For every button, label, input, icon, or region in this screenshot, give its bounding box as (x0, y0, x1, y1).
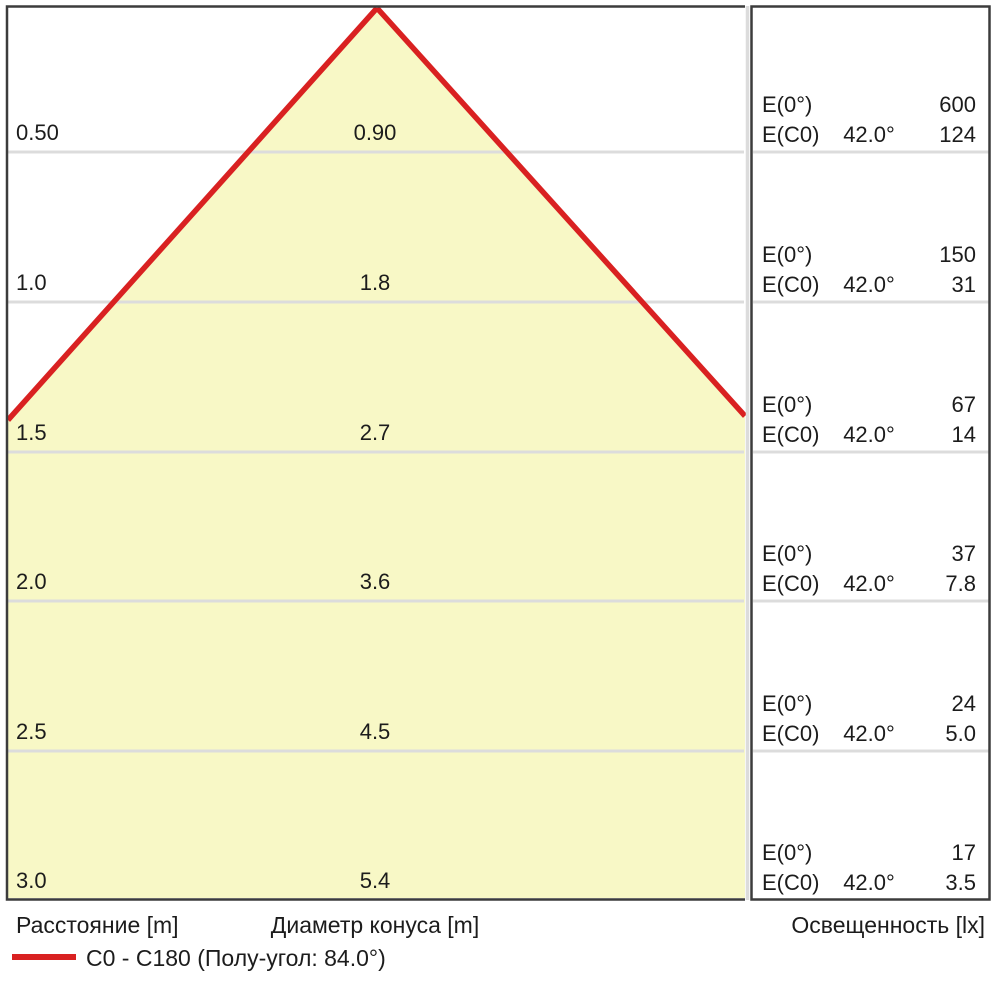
ec0-angle: 42.0° (836, 270, 902, 300)
ec0-label: E(C0) (762, 270, 836, 300)
illuminance-row: E(0°)150 E(C0)42.0°31 (762, 240, 976, 300)
distance-axis-label: Расстояние [m] (16, 910, 179, 940)
illuminance-row: E(0°)17 E(C0)42.0°3.5 (762, 838, 976, 898)
ec0-label: E(C0) (762, 120, 836, 150)
e0-value: 600 (902, 90, 976, 120)
ec0-angle: 42.0° (836, 120, 902, 150)
cone-diameter-label: 2.7 (250, 420, 500, 446)
e0-label: E(0°) (762, 240, 836, 270)
e0-label: E(0°) (762, 390, 836, 420)
e0-value: 67 (902, 390, 976, 420)
distance-label: 3.0 (16, 868, 47, 894)
ec0-angle: 42.0° (836, 868, 902, 898)
e0-value: 37 (902, 539, 976, 569)
ec0-value: 3.5 (902, 868, 976, 898)
ec0-angle: 42.0° (836, 719, 902, 749)
distance-label: 1.5 (16, 420, 47, 446)
e0-label: E(0°) (762, 689, 836, 719)
cone-diameter-label: 0.90 (250, 120, 500, 146)
cone-diameter-axis-label: Диаметр конуса [m] (250, 910, 500, 940)
illuminance-row: E(0°)37 E(C0)42.0°7.8 (762, 539, 976, 599)
distance-label: 0.50 (16, 120, 59, 146)
legend-label: C0 - C180 (Полу-угол: 84.0°) (86, 943, 386, 973)
ec0-label: E(C0) (762, 569, 836, 599)
e0-label: E(0°) (762, 539, 836, 569)
ec0-value: 124 (902, 120, 976, 150)
ec0-angle: 42.0° (836, 569, 902, 599)
ec0-value: 5.0 (902, 719, 976, 749)
cone-diagram: 0.50 1.0 1.5 2.0 2.5 3.0 0.90 1.8 2.7 3.… (0, 0, 1000, 1000)
ec0-label: E(C0) (762, 868, 836, 898)
ec0-value: 7.8 (902, 569, 976, 599)
e0-value: 150 (902, 240, 976, 270)
ec0-value: 14 (902, 420, 976, 450)
e0-label: E(0°) (762, 90, 836, 120)
cone-diameter-label: 4.5 (250, 719, 500, 745)
illuminance-row: E(0°)24 E(C0)42.0°5.0 (762, 689, 976, 749)
illuminance-row: E(0°)600 E(C0)42.0°124 (762, 90, 976, 150)
e0-label: E(0°) (762, 838, 836, 868)
e0-value: 24 (902, 689, 976, 719)
distance-label: 2.5 (16, 719, 47, 745)
distance-label: 2.0 (16, 569, 47, 595)
illuminance-axis-label: Освещенность [lx] (725, 910, 985, 940)
cone-diameter-label: 3.6 (250, 569, 500, 595)
cone-diameter-label: 5.4 (250, 868, 500, 894)
ec0-angle: 42.0° (836, 420, 902, 450)
illuminance-row: E(0°)67 E(C0)42.0°14 (762, 390, 976, 450)
ec0-label: E(C0) (762, 719, 836, 749)
e0-value: 17 (902, 838, 976, 868)
ec0-label: E(C0) (762, 420, 836, 450)
ec0-value: 31 (902, 270, 976, 300)
distance-label: 1.0 (16, 270, 47, 296)
cone-diameter-label: 1.8 (250, 270, 500, 296)
